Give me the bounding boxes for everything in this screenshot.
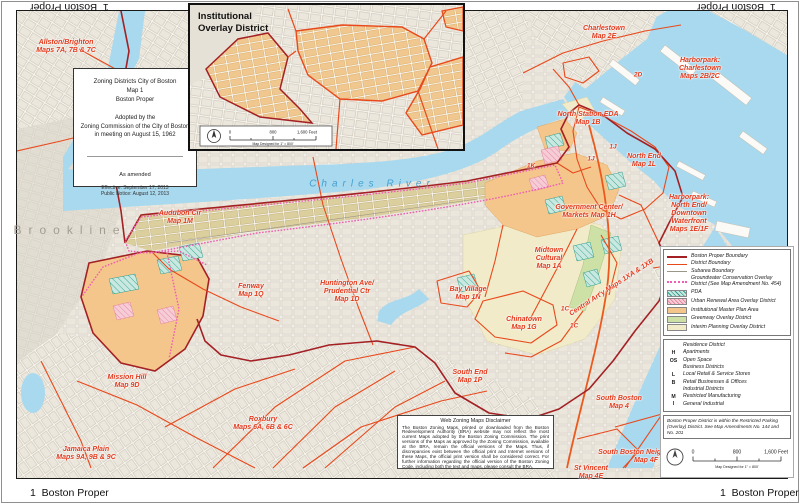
- inset-scale-mid: 800: [270, 130, 278, 135]
- map-label-st-vincent: St Vincent Map 4E: [574, 465, 608, 481]
- district-item-OS: OSOpen Space: [667, 358, 787, 364]
- legend-swatch-3: [667, 281, 687, 283]
- legend-item-2: Subarea Boundary: [667, 269, 787, 275]
- effective-date: Effective: September 17, 2013: [74, 185, 196, 192]
- district-item-L: LLocal Retail & Service Stores: [667, 372, 787, 378]
- legend-label-0: Boston Proper Boundary: [691, 254, 748, 260]
- title-divider: [87, 156, 182, 157]
- brookline-label: Brookline: [13, 223, 126, 237]
- legend-swatch-7: [667, 316, 687, 323]
- map-label-south-boston: South Boston Map 4: [596, 395, 642, 411]
- district-item-M: MRestricted Manufacturing: [667, 394, 787, 400]
- corner-label-bottom-left: 1 Boston Proper: [30, 487, 109, 499]
- legend-swatch-8: [667, 324, 687, 331]
- scale-start: 0: [692, 450, 695, 456]
- map-label-jamaica-plain: Jamaica Plain Maps 9A, 9B & 9C: [56, 446, 116, 462]
- inset-title-line2: Overlay District: [198, 23, 268, 35]
- page: Brookline Charles River Allston/Brighton…: [0, 0, 800, 504]
- map-label-government-center: Government Center/ Markets Map 1H: [555, 204, 622, 220]
- map-label-huntington: Huntington Ave/ Prudential Ctr Map 1D: [320, 280, 374, 304]
- legend-label-7: Greenway Overlay District: [691, 316, 751, 322]
- legend-swatch-4: [667, 290, 687, 297]
- legend-item-8: Interim Planning Overlay District: [667, 324, 787, 331]
- map-label-midtown-cultural: Midtown Cultural Map 1A: [535, 247, 563, 271]
- map-label-fenway: Fenway Map 1Q: [238, 283, 264, 299]
- disclaimer-body: The Boston Zoning Maps, printed or downl…: [402, 426, 549, 471]
- map-label-code-1j-b: 1J: [587, 155, 594, 162]
- title-line3: Boston Proper: [74, 96, 196, 105]
- inset-scale-note: Map Designed for 1" = 800': [253, 142, 294, 146]
- map-label-south-end: South End Map 1P: [453, 369, 488, 385]
- title-box: Zoning Districts City of Boston Map 1 Bo…: [73, 68, 197, 187]
- legend-label-4: PDA: [691, 290, 702, 296]
- legend-district-box: Residence DistrictHApartmentsOSOpen Spac…: [663, 339, 791, 412]
- legend-label-3: Groundwater Conservation Overlay Distric…: [691, 276, 787, 288]
- legend-swatch-5: [667, 298, 687, 305]
- corner-label-bottom-right: 1 Boston Proper: [720, 487, 799, 499]
- as-amended: As amended: [74, 171, 196, 179]
- adopted-line2: Zoning Commission of the City of Boston: [74, 123, 196, 131]
- disclaimer-title: Web Zoning Maps Disclaimer: [402, 418, 549, 424]
- map-label-harborpark-north-end: Harborpark: North End/ Downtown Waterfro…: [669, 194, 709, 234]
- charles-river-label: Charles River: [309, 179, 435, 190]
- scale-end: 1,600 Feet: [764, 450, 789, 456]
- map-label-code-1j-a: 1J: [609, 143, 616, 150]
- legend-swatch-6: [667, 307, 687, 314]
- map-label-roxbury: Roxbury Maps 6A, 6B & 6C: [233, 416, 293, 432]
- corner-label-top-left: 1 Boston Proper: [30, 1, 109, 13]
- inset-scale-end: 1,600 Feet: [297, 130, 318, 135]
- legend-item-7: Greenway Overlay District: [667, 316, 787, 323]
- legend: Boston Proper BoundaryDistrict BoundaryS…: [660, 246, 794, 478]
- legend-item-0: Boston Proper Boundary: [667, 254, 787, 260]
- scale-note: Map Designed for 1" = 800': [715, 465, 759, 469]
- district-group-header: Residence District: [667, 343, 787, 349]
- title-line1: Zoning Districts City of Boston: [74, 78, 196, 87]
- inset-title: Institutional Overlay District: [198, 11, 268, 35]
- legend-label-2: Subarea Boundary: [691, 269, 734, 275]
- legend-label-6: Institutional Master Plan Area: [691, 308, 759, 314]
- legend-swatch-1: [667, 264, 687, 265]
- inset-title-line1: Institutional: [198, 11, 268, 23]
- legend-item-6: Institutional Master Plan Area: [667, 307, 787, 314]
- legend-item-3: Groundwater Conservation Overlay Distric…: [667, 276, 787, 288]
- district-item-I: IGeneral Industrial: [667, 401, 787, 407]
- map-label-harborpark-charlestown: Harborpark: Charlestown Maps 2B/2C: [679, 57, 721, 81]
- map-label-allston-brighton: Allston/Brighton Maps 7A, 7B & 7C: [36, 39, 96, 55]
- legend-item-5: Urban Renewal Area Overlay District: [667, 298, 787, 305]
- scalebar-line: [693, 457, 781, 462]
- corner-label-top-right: 1 Boston Proper: [697, 1, 776, 13]
- legend-note: Boston Proper District is within the Res…: [663, 415, 791, 439]
- legend-scalebar: 0 800 1,600 Feet Map Designed for 1" = 8…: [663, 442, 789, 470]
- map-label-code-2d: 2D: [634, 71, 642, 78]
- map-label-chinatown: Chinatown Map 1G: [506, 316, 542, 332]
- district-item-H: HApartments: [667, 350, 787, 356]
- legend-item-1: District Boundary: [667, 261, 787, 267]
- scale-mid: 800: [733, 450, 742, 456]
- title-line2: Map 1: [74, 87, 196, 96]
- legend-label-1: District Boundary: [691, 261, 731, 267]
- district-group-header: Business Districts: [667, 365, 787, 371]
- legend-label-8: Interim Planning Overlay District: [691, 325, 765, 331]
- map-label-code-1c-b: 1C: [570, 322, 578, 329]
- legend-overlay-box: Boston Proper BoundaryDistrict BoundaryS…: [663, 249, 791, 336]
- map-label-north-end: North End Map 1L: [627, 153, 661, 169]
- adopted-line3: in meeting on August 15, 1962: [74, 131, 196, 139]
- legend-item-4: PDA: [667, 290, 787, 297]
- map-label-mission-hill: Mission Hill Map 9D: [108, 374, 147, 390]
- adopted-line1: Adopted by the: [74, 114, 196, 122]
- district-group-header: Industrial Districts: [667, 387, 787, 393]
- map-label-north-station-eda: North Station EDA Map 1B: [557, 111, 618, 127]
- legend-swatch-0: [667, 256, 687, 258]
- map-label-code-1k: 1K: [527, 162, 535, 169]
- public-notice-date: Public Notice: August 12, 2013: [74, 191, 196, 198]
- disclaimer-box: Web Zoning Maps Disclaimer The Boston Zo…: [397, 415, 554, 469]
- legend-label-5: Urban Renewal Area Overlay District: [691, 299, 776, 305]
- map-label-audubon-cir: Audubon Cir Map 1M: [159, 210, 201, 226]
- map-label-bay-village: Bay Village Map 1N: [449, 286, 486, 302]
- compass-needle-icon: [673, 450, 678, 459]
- legend-swatch-2: [667, 271, 687, 272]
- district-item-B: BRetail Businesses & Offices: [667, 380, 787, 386]
- map-label-charlestown: Charlestown Map 2E: [583, 25, 625, 41]
